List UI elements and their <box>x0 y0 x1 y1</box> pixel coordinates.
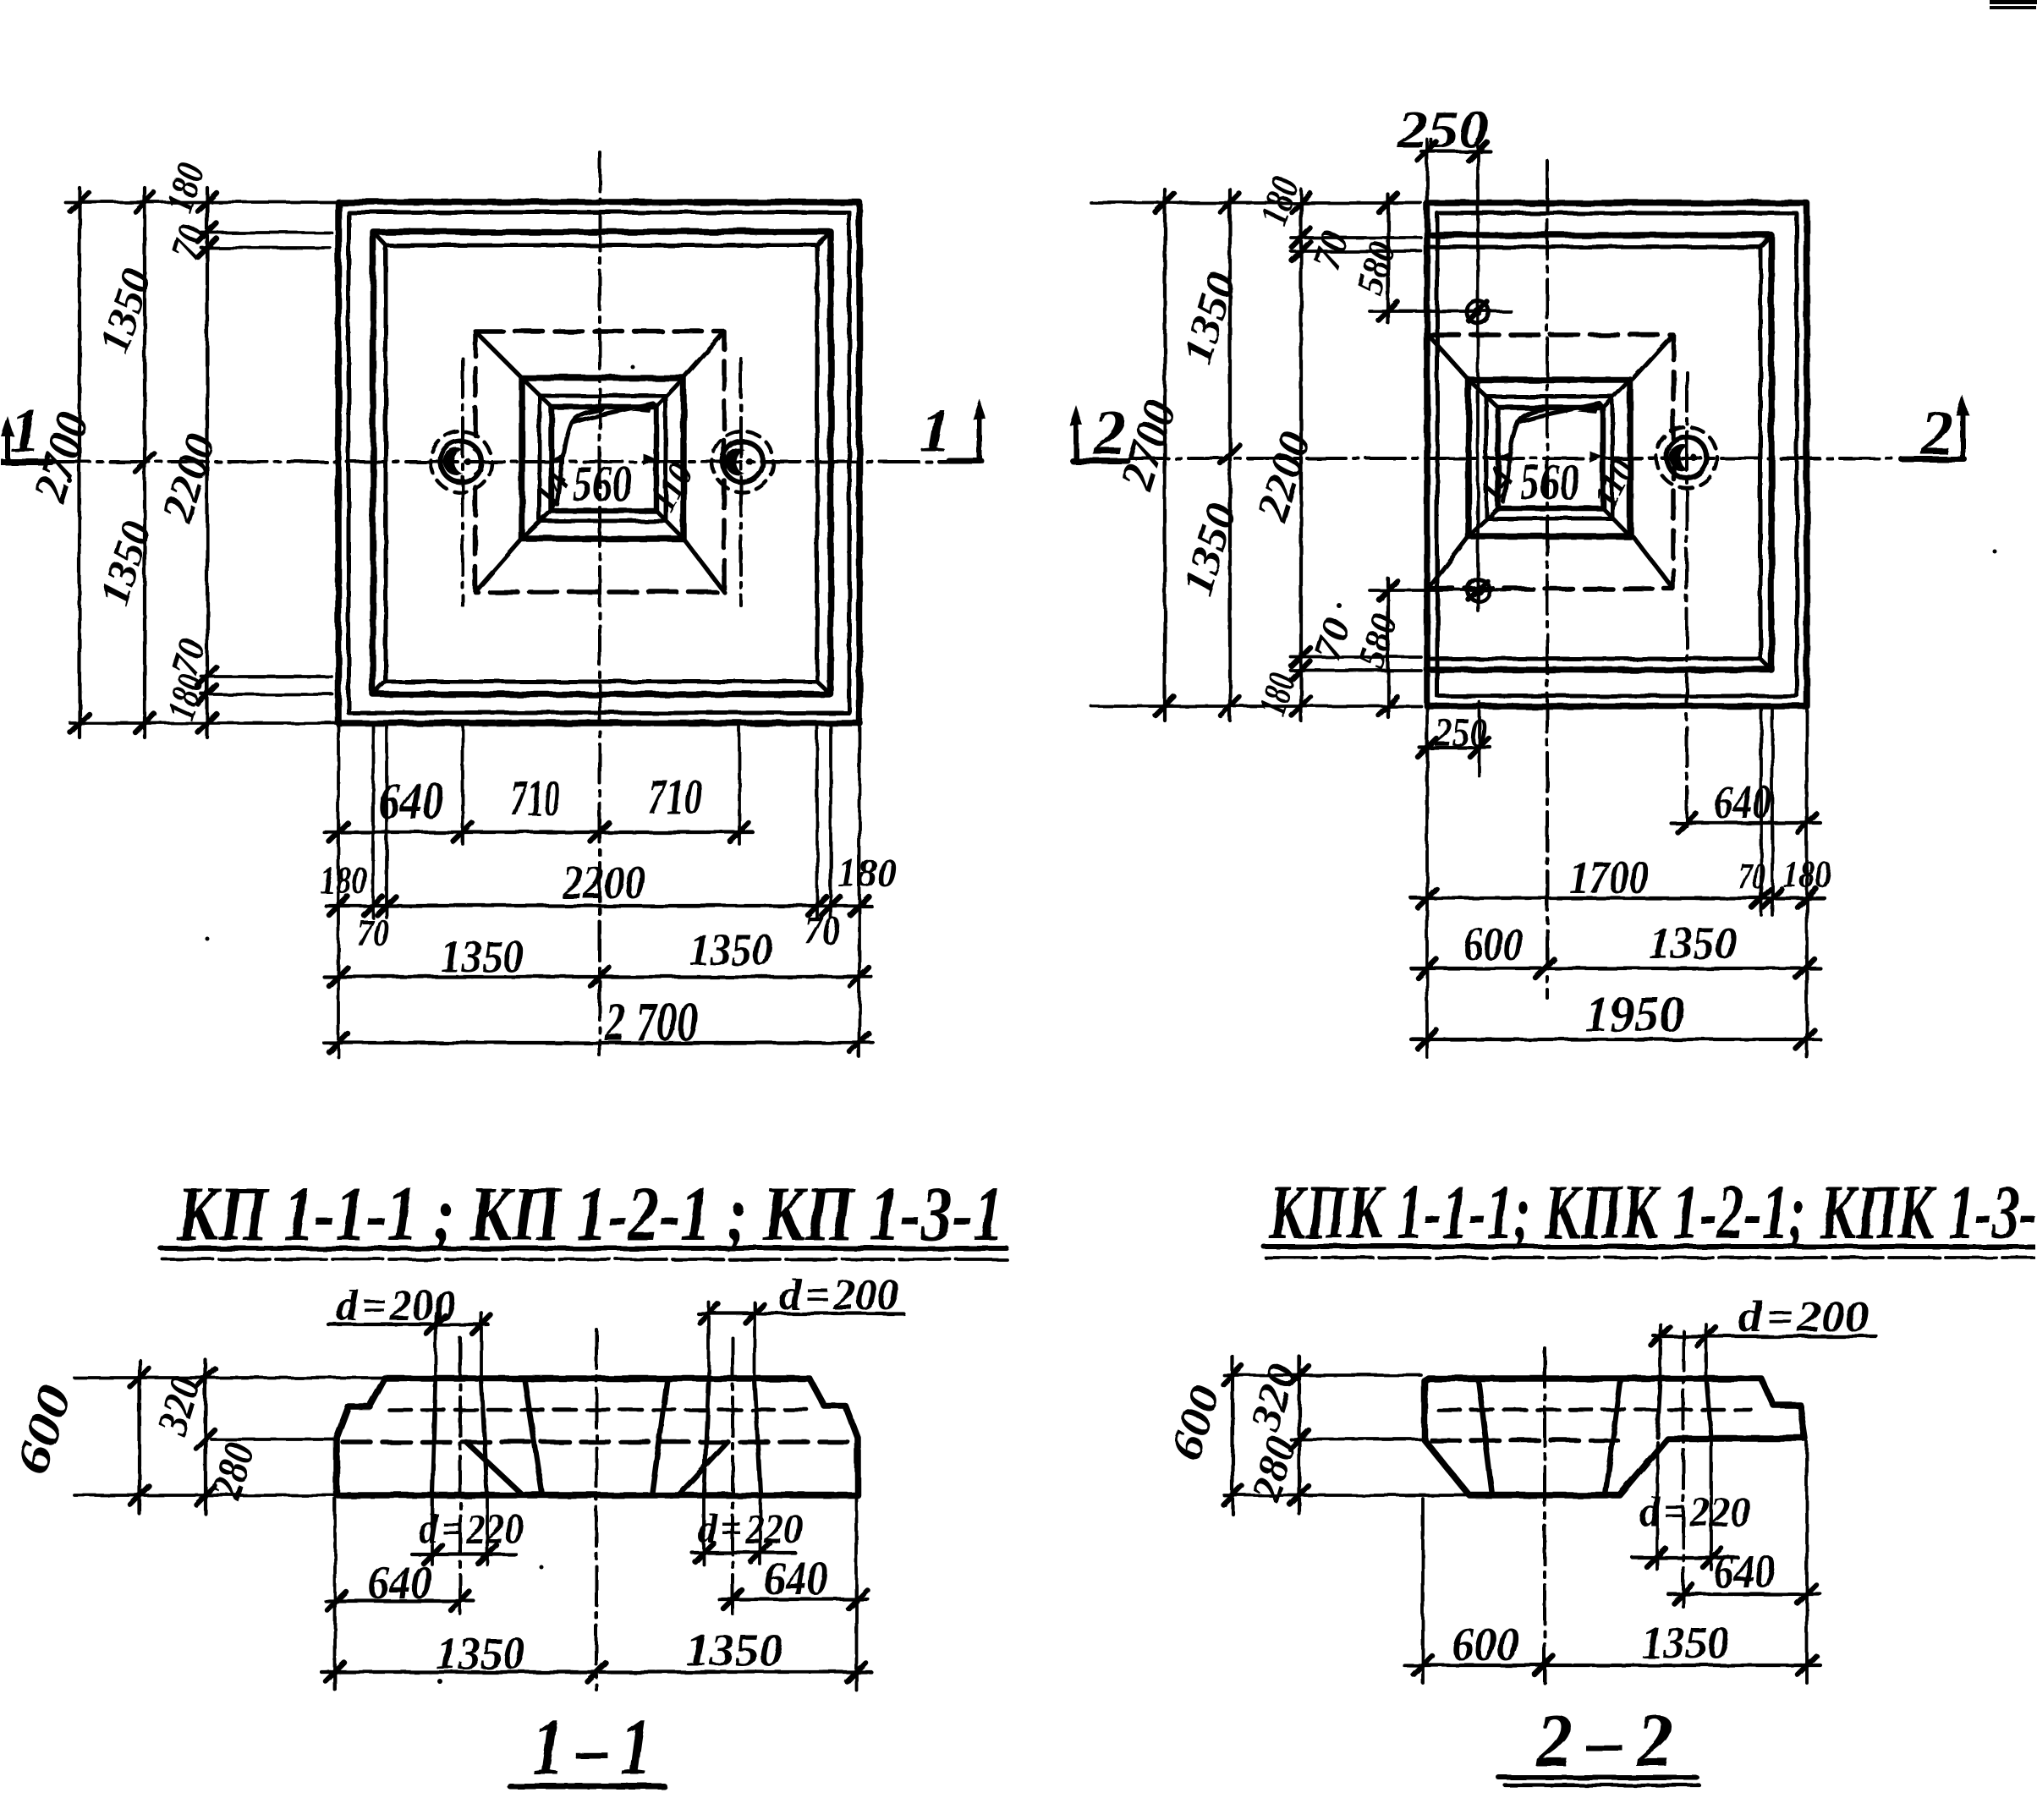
svg-text:1350: 1350 <box>1641 1617 1729 1668</box>
svg-text:d = 220: d = 220 <box>698 1505 803 1552</box>
svg-text:d = 220: d = 220 <box>1640 1488 1751 1535</box>
svg-text:d = 200: d = 200 <box>337 1282 456 1330</box>
svg-text:600: 600 <box>1463 918 1523 971</box>
svg-text:710: 710 <box>511 770 560 826</box>
svg-text:640: 640 <box>378 773 444 831</box>
svg-text:d = 220: d = 220 <box>419 1505 524 1552</box>
svg-text:2 700: 2 700 <box>604 991 698 1053</box>
svg-text:710: 710 <box>648 769 702 825</box>
svg-text:2: 2 <box>1920 397 1953 469</box>
svg-text:2200: 2200 <box>562 857 645 909</box>
svg-text:640: 640 <box>368 1557 432 1609</box>
svg-text:d = 200: d = 200 <box>780 1271 899 1319</box>
svg-text:640: 640 <box>1714 776 1771 829</box>
svg-text:70: 70 <box>804 908 840 953</box>
svg-text:d = 200: d = 200 <box>1738 1293 1869 1341</box>
svg-text:180: 180 <box>837 851 897 896</box>
svg-text:560: 560 <box>1520 454 1579 510</box>
svg-text:1350: 1350 <box>436 1628 525 1679</box>
svg-text:2 – 2: 2 – 2 <box>1535 1699 1673 1783</box>
svg-text:250: 250 <box>1434 710 1487 755</box>
svg-text:1: 1 <box>920 397 952 466</box>
svg-text:1950: 1950 <box>1584 986 1684 1042</box>
svg-text:180: 180 <box>320 858 367 902</box>
svg-text:70: 70 <box>1738 854 1765 897</box>
svg-text:560: 560 <box>573 456 632 512</box>
svg-text:1700: 1700 <box>1569 852 1649 904</box>
svg-text:640: 640 <box>1714 1546 1776 1598</box>
svg-text:250: 250 <box>1397 101 1489 159</box>
svg-text:КПК 1-1-1; КПК 1-2-1; КПК 1-3-: КПК 1-1-1; КПК 1-2-1; КПК 1-3-1 <box>1268 1169 2037 1255</box>
svg-text:1350: 1350 <box>686 1625 783 1675</box>
svg-text:1350: 1350 <box>441 931 524 982</box>
svg-text:КП 1-1-1 ; КП 1-2-1 ; КП 1-3-1: КП 1-1-1 ; КП 1-2-1 ; КП 1-3-1 <box>176 1170 1004 1257</box>
svg-text:600: 600 <box>1452 1619 1519 1671</box>
svg-text:180: 180 <box>1783 852 1831 896</box>
svg-text:1 – 1: 1 – 1 <box>533 1702 652 1792</box>
svg-text:1350: 1350 <box>689 924 772 975</box>
svg-text:1350: 1350 <box>1649 918 1737 968</box>
svg-text:70: 70 <box>357 911 389 954</box>
svg-text:640: 640 <box>764 1553 828 1605</box>
